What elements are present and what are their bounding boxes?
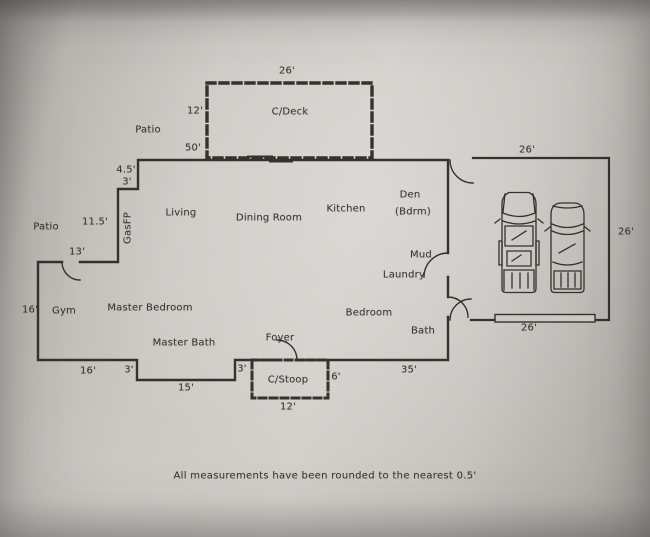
garage-door — [495, 315, 595, 323]
pickup-truck-top-view-icon — [495, 193, 543, 293]
room-label-c-deck: C/Deck — [272, 107, 309, 118]
door-arc-patio-gym — [62, 262, 80, 280]
measurement-deck-width: 26' — [279, 66, 295, 77]
measurement-bottom-left-wall: 16' — [80, 366, 96, 377]
measurement-gym-left-wall: 16' — [22, 305, 38, 316]
measurement-top-wall: 50' — [185, 143, 201, 154]
measurement-gym-top-wall: 13' — [69, 247, 85, 258]
measurement-garage-bottom: 26' — [521, 323, 537, 334]
door-arc-garage-top — [450, 160, 473, 183]
measurement-step-vertical: 4.5' — [116, 165, 135, 176]
measurement-step-horizontal: 3' — [122, 177, 132, 188]
room-label-master-bedroom: Master Bedroom — [107, 303, 192, 314]
measurement-deck-depth: 12' — [187, 106, 203, 117]
room-label-den: Den — [400, 190, 421, 201]
measurement-stoop-depth: 6' — [331, 372, 341, 383]
room-label-dining-room: Dining Room — [236, 213, 302, 224]
room-label-foyer: Foyer — [266, 333, 295, 344]
measurement-bottom-step-left: 3' — [124, 365, 134, 376]
room-label-den-bdrm: (Bdrm) — [395, 207, 431, 218]
measurement-bottom-step-right: 3' — [237, 364, 247, 375]
room-label-master-bath: Master Bath — [153, 338, 216, 349]
room-label-kitchen: Kitchen — [327, 204, 366, 215]
measurement-bottom-recess: 15' — [178, 383, 194, 394]
room-label-bedroom: Bedroom — [346, 308, 393, 319]
floor-plan-photo: Patio C/Deck Living Dining Room Kitchen … — [0, 0, 650, 537]
room-label-mud: Mud — [410, 250, 432, 261]
room-label-patio-top: Patio — [135, 125, 161, 136]
measurements-disclaimer: All measurements have been rounded to th… — [174, 471, 477, 482]
room-label-c-stoop: C/Stoop — [268, 375, 309, 386]
measurement-patio-left-wall: 11.5' — [82, 217, 108, 228]
deck-outline — [207, 83, 372, 158]
floor-plan-drawing — [0, 0, 650, 537]
measurement-bottom-right-wall: 35' — [401, 365, 417, 376]
measurement-garage-right: 26' — [618, 227, 634, 238]
room-label-gym: Gym — [52, 306, 76, 317]
measurement-stoop-width: 12' — [280, 402, 296, 413]
measurement-garage-top: 26' — [519, 145, 535, 156]
suv-top-view-icon — [545, 203, 590, 293]
room-label-laundry: Laundry — [383, 270, 425, 281]
room-label-gasfp: GasFP — [123, 212, 134, 244]
room-label-patio-left: Patio — [33, 222, 59, 233]
room-label-living: Living — [166, 208, 197, 219]
room-label-bath: Bath — [411, 326, 435, 337]
garage-walls — [471, 158, 609, 320]
